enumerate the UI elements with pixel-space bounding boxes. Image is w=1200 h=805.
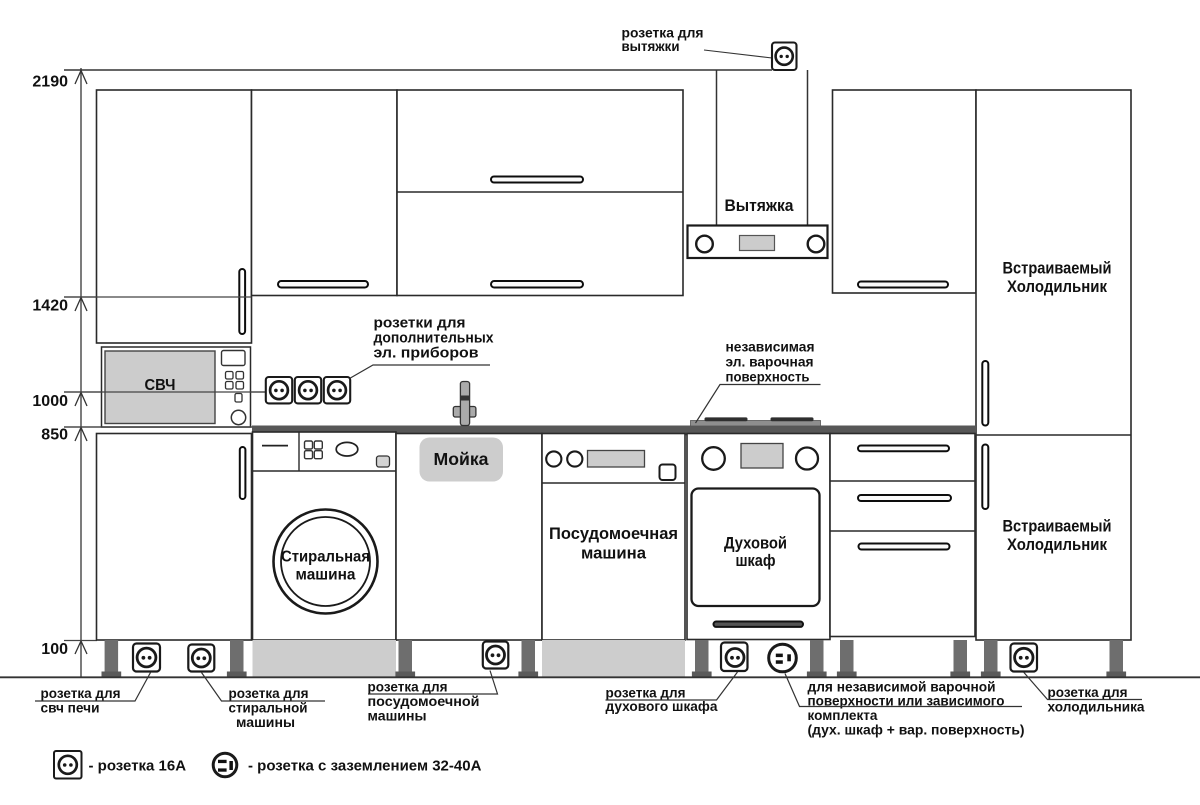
svg-text:свч печи: свч печи xyxy=(41,700,100,716)
svg-text:Холодильник: Холодильник xyxy=(1007,536,1108,554)
svg-text:шкаф: шкаф xyxy=(736,552,776,570)
svg-text:холодильника: холодильника xyxy=(1048,699,1145,715)
svg-text:Встраиваемый: Встраиваемый xyxy=(1003,518,1112,536)
svg-text:Мойка: Мойка xyxy=(434,449,489,469)
svg-text:машина: машина xyxy=(581,544,647,563)
svg-text:машины: машины xyxy=(236,714,295,730)
svg-text:вытяжки: вытяжки xyxy=(622,38,680,54)
svg-text:Посудомоечная: Посудомоечная xyxy=(549,524,678,543)
svg-text:Духовой: Духовой xyxy=(724,535,787,553)
svg-text:Встраиваемый: Встраиваемый xyxy=(1003,260,1112,278)
svg-text:Стиральная: Стиральная xyxy=(281,549,370,566)
svg-text:1000: 1000 xyxy=(32,393,68,410)
svg-text:эл. приборов: эл. приборов xyxy=(374,345,479,362)
svg-text:поверхность: поверхность xyxy=(726,369,810,385)
svg-text:(дух. шкаф + вар. поверхность): (дух. шкаф + вар. поверхность) xyxy=(808,722,1025,738)
svg-text:1420: 1420 xyxy=(32,298,68,315)
svg-text:машины: машины xyxy=(368,708,427,724)
svg-text:Холодильник: Холодильник xyxy=(1007,278,1108,296)
svg-text:2190: 2190 xyxy=(32,74,68,91)
svg-text:- розетка 16А: - розетка 16А xyxy=(89,758,187,775)
svg-text:независимая: независимая xyxy=(726,339,815,355)
svg-text:эл. варочная: эл. варочная xyxy=(726,354,814,370)
svg-text:100: 100 xyxy=(41,641,68,658)
svg-text:машина: машина xyxy=(296,567,356,584)
svg-text:850: 850 xyxy=(41,427,68,444)
svg-text:- розетка с заземлением 32-40А: - розетка с заземлением 32-40А xyxy=(248,758,482,775)
svg-text:Вытяжка: Вытяжка xyxy=(725,196,794,215)
